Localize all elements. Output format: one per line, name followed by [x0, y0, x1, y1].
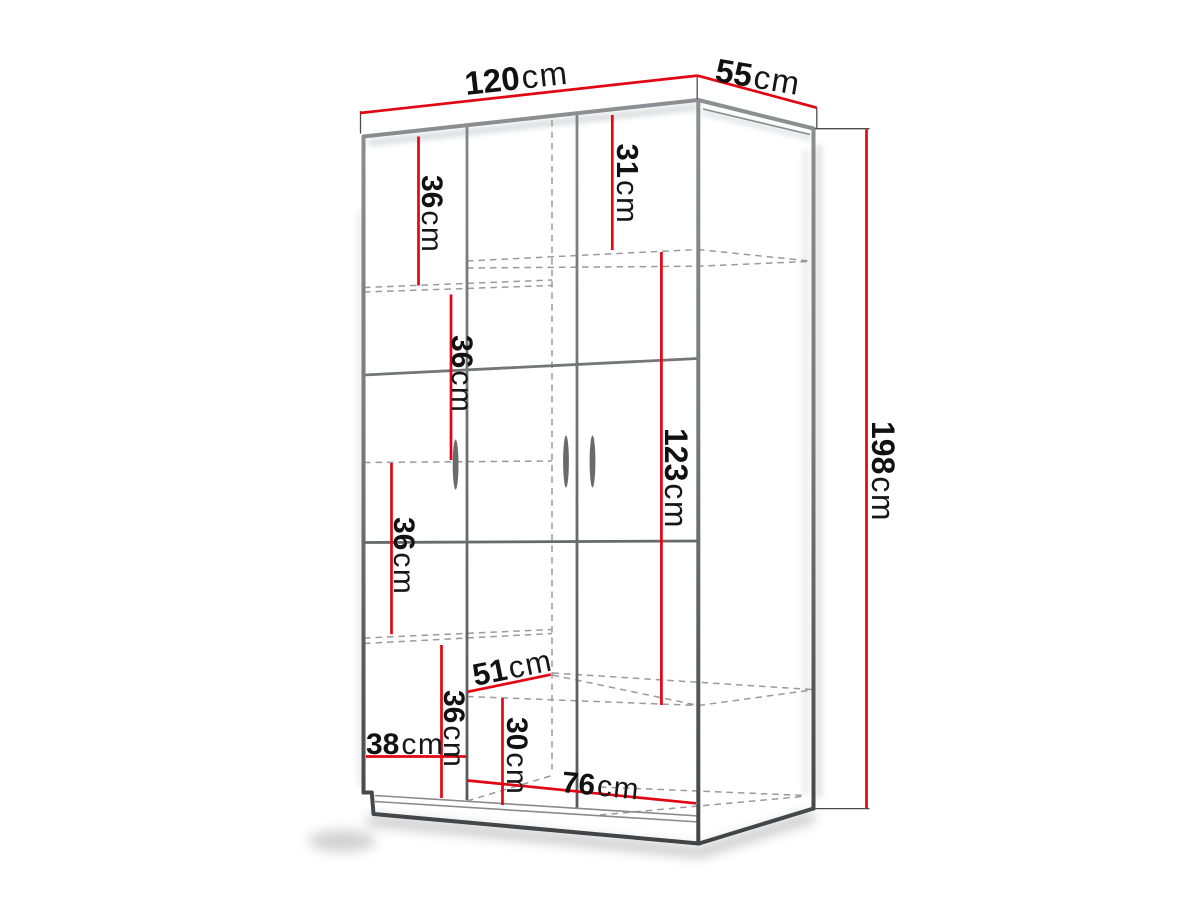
svg-text:31cm: 31cm — [610, 144, 645, 225]
svg-text:30cm: 30cm — [500, 717, 533, 795]
svg-text:36cm: 36cm — [415, 175, 448, 253]
svg-text:36cm: 36cm — [445, 335, 478, 413]
svg-text:198cm: 198cm — [865, 421, 901, 522]
svg-text:123cm: 123cm — [658, 428, 694, 529]
svg-text:36cm: 36cm — [387, 517, 420, 595]
svg-text:38cm: 38cm — [366, 728, 444, 761]
